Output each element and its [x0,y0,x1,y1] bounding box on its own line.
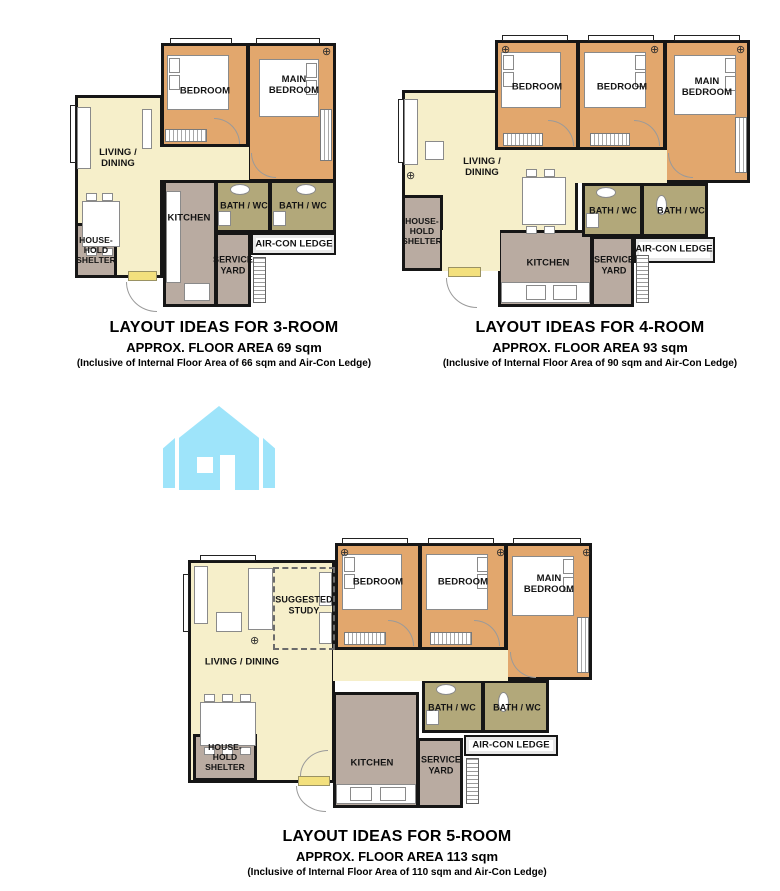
furniture [636,255,649,303]
caption-4-room-title: LAYOUT IDEAS FOR 4-ROOM [404,319,776,337]
furniture [296,184,316,195]
room-label-service-yard: SERVICE YARD [213,254,253,275]
window [588,35,654,41]
furniture [222,694,233,702]
furniture [248,568,273,630]
furniture [526,169,537,177]
caption-3-room-area: APPROX. FLOOR AREA 69 sqm [38,340,410,355]
caption-5-room-note: (Inclusive of Internal Floor Area of 110… [211,867,583,878]
furniture [216,612,242,632]
ceiling-point-icon: ⊕ [650,45,659,56]
caption-4-room-note: (Inclusive of Internal Floor Area of 90 … [404,358,776,369]
furniture [169,75,180,90]
room-label-air-con-ledge: AIR-CON LEDGE [635,243,712,254]
house-window-shape [197,457,213,473]
caption-3-room-note: (Inclusive of Internal Floor Area of 66 … [38,358,410,369]
caption-5-room-title: LAYOUT IDEAS FOR 5-ROOM [211,828,583,846]
hallway [575,150,667,183]
ceiling-point-icon: ⊕ [582,548,591,559]
door-swing-arc [296,786,326,812]
furniture [725,58,736,73]
room-label-bath-wc-2: BATH / WC [279,201,327,212]
window [256,38,320,44]
furniture [169,58,180,73]
houses-icon [163,400,275,490]
furniture [590,133,630,146]
furniture [102,193,113,201]
room-label-main-bedroom: MAIN BEDROOM [682,76,732,98]
furniture [86,193,97,201]
furniture [319,612,332,644]
furniture [553,285,577,300]
furniture [204,694,215,702]
ceiling-point-icon: ⊕ [406,171,415,182]
room-label-main-bedroom: MAIN BEDROOM [524,573,574,595]
house-front-shape [179,406,259,490]
furniture [380,787,406,801]
furniture [273,211,286,226]
furniture [200,702,256,746]
caption-5-room-area: APPROX. FLOOR AREA 113 sqm [211,849,583,864]
room-label-bedroom-2: BEDROOM [597,81,647,92]
furniture [577,617,589,673]
furniture [477,557,488,572]
ceiling-point-icon: ⊕ [322,47,331,58]
room-label-suggested-study: SUGGESTED STUDY [275,594,332,615]
window [502,35,568,41]
room-label-service-yard: SERVICE YARD [594,254,634,275]
room-label-household-shelter: HOUSE- HOLD SHELTER [205,742,245,772]
furniture [544,169,555,177]
furniture [425,141,444,160]
furniture [240,694,251,702]
window [342,538,408,544]
furniture [735,117,747,173]
door-swing-arc [446,278,477,308]
furniture [165,129,207,142]
ceiling-point-icon: ⊕ [501,45,510,56]
floor-plan-3-room: ⊕LIVING / DININGBEDROOMMAIN BEDROOMKITCH… [68,25,348,317]
floor-plan-5-room: ⊕⊕⊕⊕LIVING / DININGSUGGESTED STUDYBEDROO… [180,522,595,814]
caption-4-room: LAYOUT IDEAS FOR 4-ROOM APPROX. FLOOR AR… [404,319,776,369]
room-label-bath-wc-2: BATH / WC [657,206,705,217]
ceiling-point-icon: ⊕ [340,548,349,559]
furniture [350,787,372,801]
floor-plan-sheet: ⊕LIVING / DININGBEDROOMMAIN BEDROOMKITCH… [0,0,780,891]
room-label-kitchen: KITCHEN [527,257,570,268]
room-label-living-dining: LIVING / DINING [99,147,137,169]
furniture [526,285,546,300]
room-label-air-con-ledge: AIR-CON LEDGE [472,739,549,750]
window [183,574,189,632]
entrance-threshold [128,271,157,281]
hallway [442,230,500,271]
room-label-bath-wc-1: BATH / WC [589,206,637,217]
ceiling-point-icon: ⊕ [250,636,259,647]
caption-5-room: LAYOUT IDEAS FOR 5-ROOM APPROX. FLOOR AR… [211,828,583,878]
caption-3-room: LAYOUT IDEAS FOR 3-ROOM APPROX. FLOOR AR… [38,319,410,369]
floor-plan-4-room: ⊕⊕⊕⊕LIVING / DININGBEDROOMBEDROOMMAIN BE… [398,25,754,317]
room-label-bath-wc-1: BATH / WC [428,703,476,714]
furniture [596,187,616,198]
entrance-threshold [298,776,330,786]
room-label-household-shelter: HOUSE- HOLD SHELTER [76,235,116,265]
furniture [166,191,181,283]
room-label-bath-wc-2: BATH / WC [493,703,541,714]
ceiling-point-icon: ⊕ [496,548,505,559]
room-label-bedroom: BEDROOM [180,85,230,96]
furniture [563,559,574,574]
caption-4-room-area: APPROX. FLOOR AREA 93 sqm [404,340,776,355]
furniture [430,632,472,645]
caption-3-room-title: LAYOUT IDEAS FOR 3-ROOM [38,319,410,337]
furniture [635,55,646,70]
furniture [344,632,386,645]
room-label-living-dining: LIVING / DINING [463,156,501,178]
room-label-household-shelter: HOUSE- HOLD SHELTER [402,216,442,246]
room-label-air-con-ledge: AIR-CON LEDGE [255,238,332,249]
furniture [77,107,91,169]
room-label-living-dining: LIVING / DINING [205,656,279,667]
furniture [526,226,537,234]
furniture [142,109,152,149]
furniture [320,109,332,161]
room-label-bedroom-1: BEDROOM [353,576,403,587]
window [170,38,232,44]
hallway [159,147,249,180]
window [674,35,740,41]
room-label-bath-wc-1: BATH / WC [220,201,268,212]
room-label-bedroom-2: BEDROOM [438,576,488,587]
furniture [253,257,266,303]
room-label-kitchen: KITCHEN [168,212,211,223]
furniture [503,133,543,146]
furniture [184,283,210,301]
door-swing-arc [126,282,157,312]
furniture [503,55,514,70]
furniture [230,184,250,195]
room-label-bedroom-1: BEDROOM [512,81,562,92]
furniture [344,557,355,572]
furniture [404,99,418,165]
furniture [544,226,555,234]
furniture [194,566,208,624]
window [200,555,256,561]
furniture [218,211,231,226]
window [513,538,581,544]
room-label-main-bedroom: MAIN BEDROOM [269,74,319,96]
house-door-shape [220,455,235,490]
ceiling-point-icon: ⊕ [736,45,745,56]
room-label-service-yard: SERVICE YARD [421,754,461,775]
furniture [522,177,566,225]
entrance-threshold [448,267,481,277]
furniture [436,684,456,695]
hallway [333,650,508,681]
room-label-kitchen: KITCHEN [351,757,394,768]
window [428,538,494,544]
furniture [466,758,479,804]
window [70,105,76,163]
